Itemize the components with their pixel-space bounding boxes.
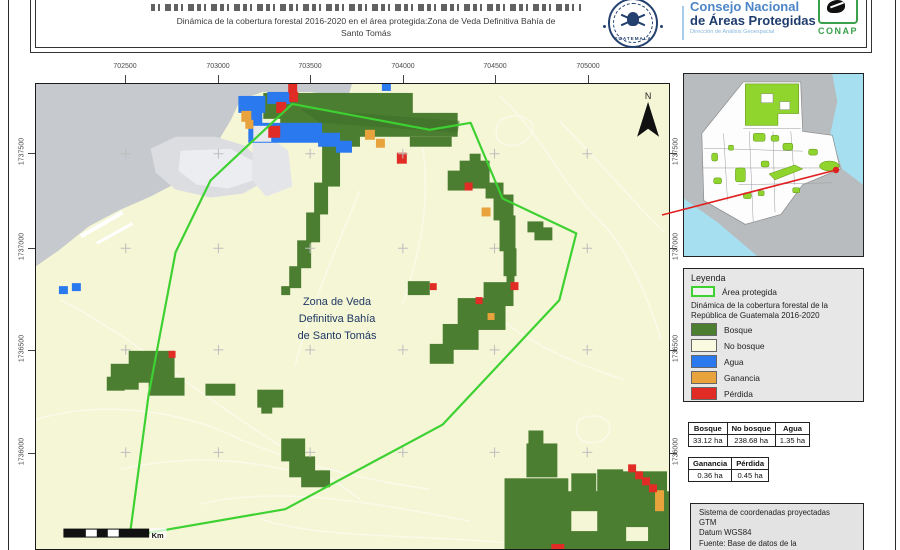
- northing-tick: [28, 350, 35, 351]
- easting-tick: [218, 75, 219, 83]
- conap-logo: CONAP: [808, 0, 868, 36]
- svg-text:Definitiva Bahía: Definitiva Bahía: [299, 313, 377, 325]
- legend-row-bosque: Bosque: [691, 323, 856, 336]
- northing-tick: [670, 248, 677, 249]
- northing-tick: [28, 453, 35, 454]
- svg-text:Zona de Veda: Zona de Veda: [303, 296, 372, 308]
- northing-label-right: 1737000: [673, 217, 680, 277]
- seal-country-label: GUATEMALA: [610, 36, 656, 41]
- perdida-swatch: [691, 387, 717, 400]
- easting-label: 702500: [100, 63, 150, 70]
- change-table: Ganancia Pérdida 0.36 ha 0.45 ha: [688, 457, 769, 482]
- scale-unit-label: Km: [152, 531, 164, 540]
- northing-label-right: 1736000: [673, 422, 680, 482]
- easting-label: 703000: [193, 63, 243, 70]
- seal-dot: [660, 25, 663, 28]
- easting-label: 704500: [470, 63, 520, 70]
- easting-label: 703500: [285, 63, 335, 70]
- legend-label: Bosque: [724, 325, 752, 335]
- clearing: [571, 511, 597, 531]
- page-border-left: [8, 0, 9, 550]
- table-cell: 0.36 ha: [689, 470, 732, 482]
- table-value-row: 0.36 ha 0.45 ha: [689, 470, 769, 482]
- northing-label-left: 1737500: [19, 122, 26, 182]
- easting-tick: [403, 75, 404, 83]
- northing-tick: [28, 153, 35, 154]
- table-cell: 238.68 ha: [727, 435, 775, 447]
- legend-row-ganancia: Ganancia: [691, 371, 856, 384]
- northing-tick: [670, 350, 677, 351]
- legend-label: Área protegida: [722, 287, 777, 297]
- easting-label: 704000: [378, 63, 428, 70]
- conap-emblem-icon: [818, 0, 858, 24]
- svg-text:N: N: [645, 91, 651, 101]
- table-header: Pérdida: [732, 458, 769, 470]
- ganancia-swatch: [691, 371, 717, 384]
- map-label: Zona de Veda Definitiva Bahía de Santo T…: [298, 296, 377, 342]
- map-title-line1: Dinámica de la cobertura forestal 2016-2…: [106, 16, 626, 26]
- bosque-swatch: [691, 323, 717, 336]
- legend-row-agua: Agua: [691, 355, 856, 368]
- easting-tick: [588, 75, 589, 83]
- clearing: [626, 527, 648, 541]
- table-value-row: 33.12 ha 238.68 ha 1.35 ha: [689, 435, 810, 447]
- crs-line: Sistema de coordenadas proyectadas: [699, 508, 855, 518]
- table-cell: 1.35 ha: [775, 435, 809, 447]
- guatemala-seal-logo: GUATEMALA: [608, 0, 658, 48]
- header-inner-frame: Dinámica de la cobertura forestal 2016-2…: [35, 0, 867, 48]
- page-border-right: [895, 0, 896, 550]
- table-cell: 0.45 ha: [732, 470, 769, 482]
- table-header: Agua: [775, 423, 809, 435]
- legend-row-no-bosque: No bosque: [691, 339, 856, 352]
- coverage-table: Bosque No bosque Agua 33.12 ha 238.68 ha…: [688, 422, 810, 447]
- no-bosque-swatch: [691, 339, 717, 352]
- northing-tick: [28, 248, 35, 249]
- protected-area-swatch: [691, 286, 715, 297]
- easting-tick: [495, 75, 496, 83]
- table-header: No bosque: [727, 423, 775, 435]
- map-title-line2: Santo Tomás: [106, 28, 626, 38]
- truncated-title-line: [151, 4, 581, 11]
- logo-divider: [682, 6, 684, 40]
- northing-label-left: 1736000: [19, 422, 26, 482]
- conap-label: CONAP: [808, 26, 868, 36]
- header: Dinámica de la cobertura forestal 2016-2…: [30, 0, 872, 53]
- northing-tick: [670, 153, 677, 154]
- northing-label-right: 1737500: [673, 122, 680, 182]
- crs-line: GTM: [699, 518, 855, 528]
- legend-row-perdida: Pérdida: [691, 387, 856, 400]
- legend-title: Leyenda: [691, 273, 856, 283]
- legend-label: Ganancia: [724, 373, 760, 383]
- crs-info-box: Sistema de coordenadas proyectadas GTM D…: [690, 503, 864, 550]
- northing-label-left: 1737000: [19, 217, 26, 277]
- table-header: Bosque: [689, 423, 728, 435]
- agua-swatch: [691, 355, 717, 368]
- northing-label-left: 1736500: [19, 319, 26, 379]
- table-header: Ganancia: [689, 458, 732, 470]
- legend-row-protected: Área protegida: [691, 286, 856, 297]
- legend-label: Agua: [724, 357, 744, 367]
- map-layout-page: Dinámica de la cobertura forestal 2016-2…: [0, 0, 900, 550]
- easting-tick: [310, 75, 311, 83]
- table-header-row: Ganancia Pérdida: [689, 458, 769, 470]
- easting-label: 705000: [563, 63, 613, 70]
- table-header-row: Bosque No bosque Agua: [689, 423, 810, 435]
- main-map: Zona de Veda Definitiva Bahía de Santo T…: [35, 83, 670, 550]
- crs-line: Datum WGS84: [699, 528, 855, 538]
- table-cell: 33.12 ha: [689, 435, 728, 447]
- quetzal-icon: [627, 12, 639, 26]
- legend-label: Pérdida: [724, 389, 753, 399]
- northing-label-right: 1736500: [673, 319, 680, 379]
- inset-map: [683, 73, 864, 257]
- easting-tick: [125, 75, 126, 83]
- crs-line: Fuente: Base de datos de la: [699, 539, 855, 549]
- svg-text:de Santo Tomás: de Santo Tomás: [298, 330, 377, 342]
- legend-label: No bosque: [724, 341, 765, 351]
- northing-tick: [670, 453, 677, 454]
- header-title-block: Dinámica de la cobertura forestal 2016-2…: [106, 0, 626, 47]
- legend: Leyenda Área protegida Dinámica de la co…: [683, 268, 864, 402]
- legend-subtitle: Dinámica de la cobertura forestal de la …: [691, 301, 853, 320]
